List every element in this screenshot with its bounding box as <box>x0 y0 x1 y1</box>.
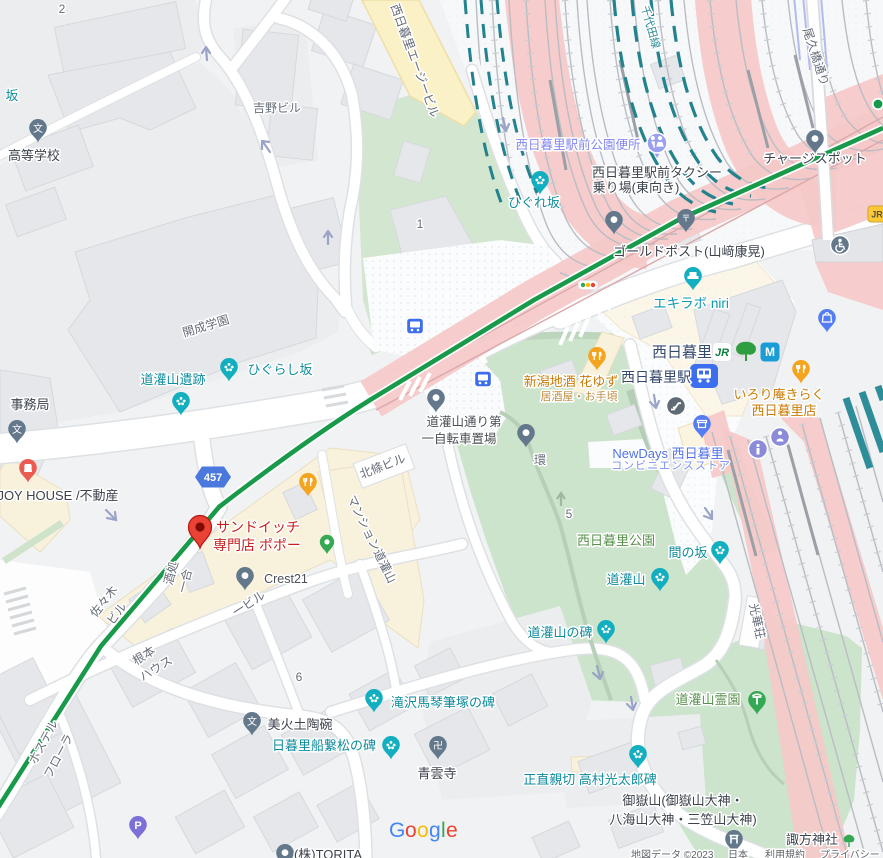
svg-text:西日暮里駅前公園便所: 西日暮里駅前公園便所 <box>515 137 640 152</box>
svg-text:457: 457 <box>204 472 222 484</box>
svg-text:西日暮里: 西日暮里 <box>652 344 712 361</box>
svg-text:御嶽山(御嶽山大神・: 御嶽山(御嶽山大神・ <box>622 793 743 808</box>
svg-text:道灌山遺跡: 道灌山遺跡 <box>140 372 205 387</box>
svg-text:文: 文 <box>33 122 43 135</box>
svg-text:卍: 卍 <box>433 740 443 752</box>
svg-text:居酒屋・お手頃: 居酒屋・お手頃 <box>541 389 618 403</box>
svg-text:o: o <box>405 819 417 842</box>
svg-text:西日暮里公園: 西日暮里公園 <box>577 533 655 548</box>
svg-text:JR: JR <box>871 210 883 220</box>
svg-text:JOY HOUSE /不動産: JOY HOUSE /不動産 <box>0 488 119 503</box>
svg-text:Crest21: Crest21 <box>264 572 308 586</box>
svg-text:専門店 ポポー: 専門店 ポポー <box>213 537 301 553</box>
svg-text:チャージスポット: チャージスポット <box>763 151 867 166</box>
svg-text:環: 環 <box>534 453 546 467</box>
svg-text:〒: 〒 <box>681 214 690 224</box>
svg-text:利用規約: 利用規約 <box>765 848 805 858</box>
svg-text:5: 5 <box>566 507 573 521</box>
svg-text:坂: 坂 <box>5 88 18 103</box>
svg-text:吉野ビル: 吉野ビル <box>253 101 301 115</box>
svg-text:道灌山通り第: 道灌山通り第 <box>426 415 501 429</box>
svg-text:日本: 日本 <box>728 848 748 858</box>
svg-text:新潟地酒 花ゆず: 新潟地酒 花ゆず <box>524 374 619 389</box>
svg-text:コンビニエンスストア: コンビニエンスストア <box>611 459 731 472</box>
svg-text:正直親切 高村光太郎碑: 正直親切 高村光太郎碑 <box>523 772 657 787</box>
svg-text:文: 文 <box>247 715 257 728</box>
svg-text:日暮里船繋松の碑: 日暮里船繋松の碑 <box>272 738 376 753</box>
svg-text:道灌山: 道灌山 <box>606 572 645 587</box>
svg-text:一自転車置場: 一自転車置場 <box>421 432 496 446</box>
svg-text:NewDays 西日暮里: NewDays 西日暮里 <box>612 446 723 461</box>
svg-text:(株)TORITA: (株)TORITA <box>294 847 362 858</box>
svg-text:g: g <box>429 819 441 842</box>
svg-text:ひぐらし坂: ひぐらし坂 <box>247 362 312 377</box>
svg-text:滝沢馬琴筆塚の碑: 滝沢馬琴筆塚の碑 <box>391 695 495 710</box>
svg-text:八海山大神・三笠山大神): 八海山大神・三笠山大神) <box>609 812 756 827</box>
svg-text:ひぐれ坂: ひぐれ坂 <box>508 195 560 210</box>
svg-text:乗り場(東向き): 乗り場(東向き) <box>593 180 680 195</box>
svg-text:青雲寺: 青雲寺 <box>417 766 456 781</box>
svg-text:間の坂: 間の坂 <box>668 545 707 560</box>
svg-text:l: l <box>441 819 446 842</box>
svg-text:西日暮里店: 西日暮里店 <box>751 403 816 418</box>
svg-text:M: M <box>765 345 775 359</box>
svg-text:ゴールドポスト(山﨑康晃): ゴールドポスト(山﨑康晃) <box>613 244 765 259</box>
svg-text:P: P <box>134 820 141 832</box>
svg-text:事務局: 事務局 <box>10 397 49 412</box>
svg-text:1: 1 <box>417 217 424 231</box>
svg-text:JR: JR <box>715 347 729 359</box>
svg-text:6: 6 <box>296 670 303 684</box>
svg-text:o: o <box>417 819 429 842</box>
svg-text:エキラボ niri: エキラボ niri <box>653 296 729 311</box>
svg-text:西日暮里駅前タクシー: 西日暮里駅前タクシー <box>592 165 722 180</box>
svg-text:サンドイッチ: サンドイッチ <box>216 519 300 535</box>
svg-text:e: e <box>446 819 458 842</box>
svg-text:G: G <box>389 819 405 842</box>
svg-text:プライバシー: プライバシー <box>820 849 880 858</box>
svg-text:いろり庵きらく: いろり庵きらく <box>733 387 824 402</box>
svg-text:西日暮里駅: 西日暮里駅 <box>621 369 691 385</box>
svg-text:諏方神社: 諏方神社 <box>786 832 838 847</box>
svg-text:美火土陶碗: 美火土陶碗 <box>267 717 332 732</box>
svg-text:道灌山の碑: 道灌山の碑 <box>527 625 592 640</box>
svg-text:2: 2 <box>59 2 66 16</box>
svg-text:高等学校: 高等学校 <box>8 148 60 163</box>
svg-text:道灌山霊園: 道灌山霊園 <box>675 692 740 707</box>
svg-text:地図データ ©2023: 地図データ ©2023 <box>631 848 714 858</box>
svg-text:文: 文 <box>12 423 22 436</box>
